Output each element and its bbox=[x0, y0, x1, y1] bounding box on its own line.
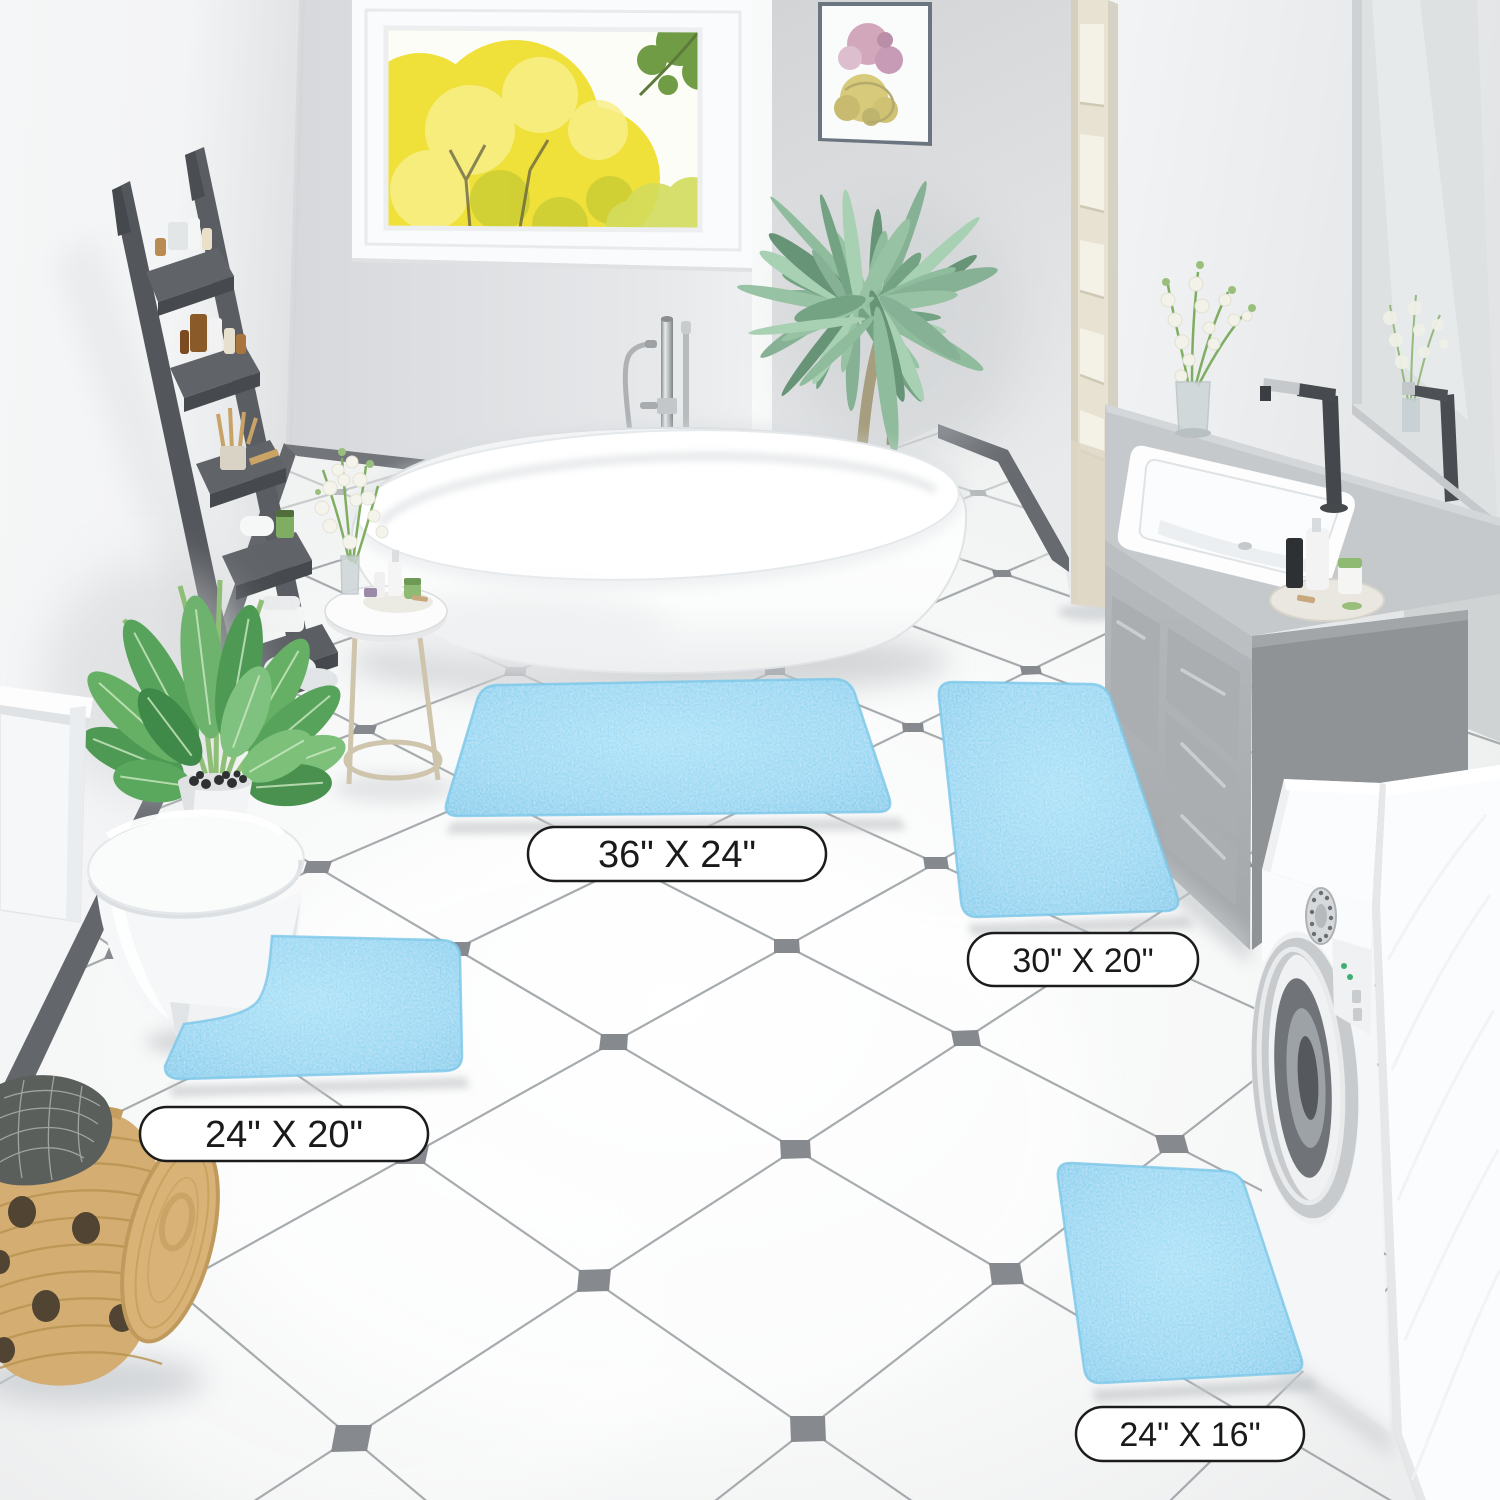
svg-text:24" X 16": 24" X 16" bbox=[1119, 1416, 1260, 1454]
svg-text:30" X 20": 30" X 20" bbox=[1012, 942, 1153, 980]
svg-text:24" X 20": 24" X 20" bbox=[205, 1114, 363, 1156]
svg-text:36" X 24": 36" X 24" bbox=[598, 834, 756, 876]
